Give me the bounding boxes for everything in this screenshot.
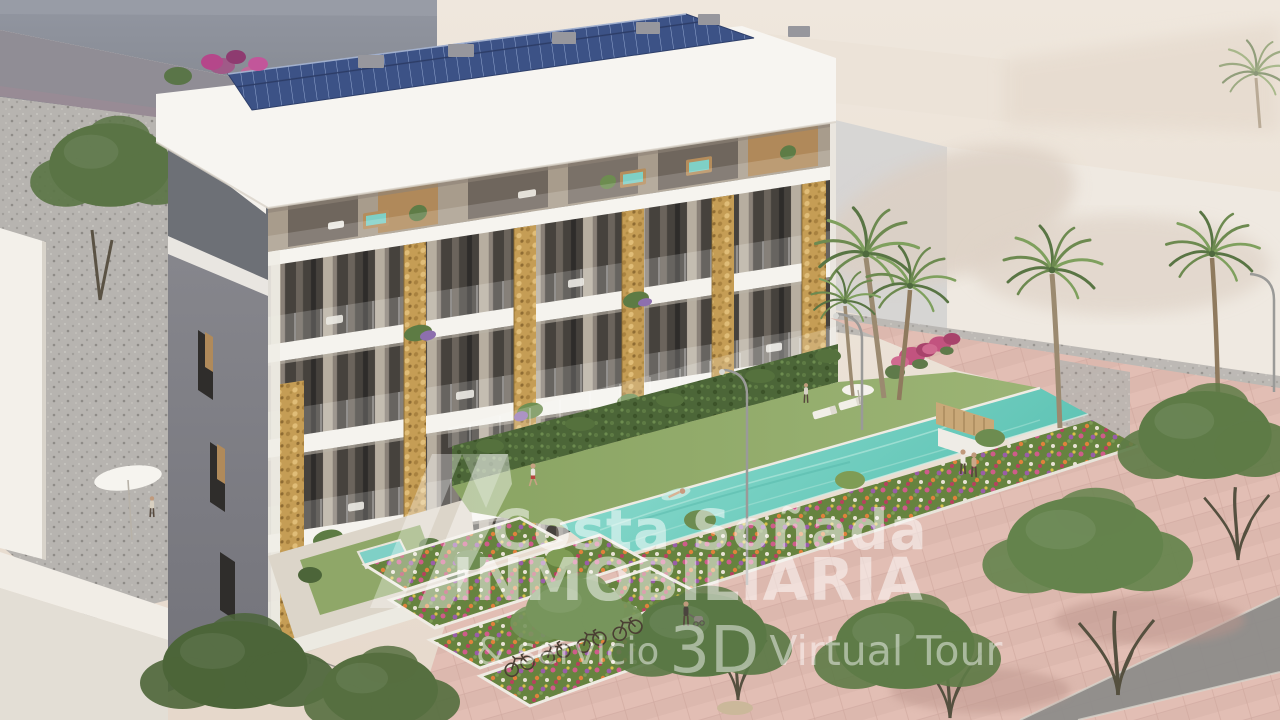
render-scene bbox=[0, 0, 1280, 720]
building-side-wall bbox=[168, 140, 268, 692]
far-left-white-building bbox=[0, 228, 46, 560]
architectural-render: Costa Soñada INMOBILIARIA & servicio 3D … bbox=[0, 0, 1280, 720]
